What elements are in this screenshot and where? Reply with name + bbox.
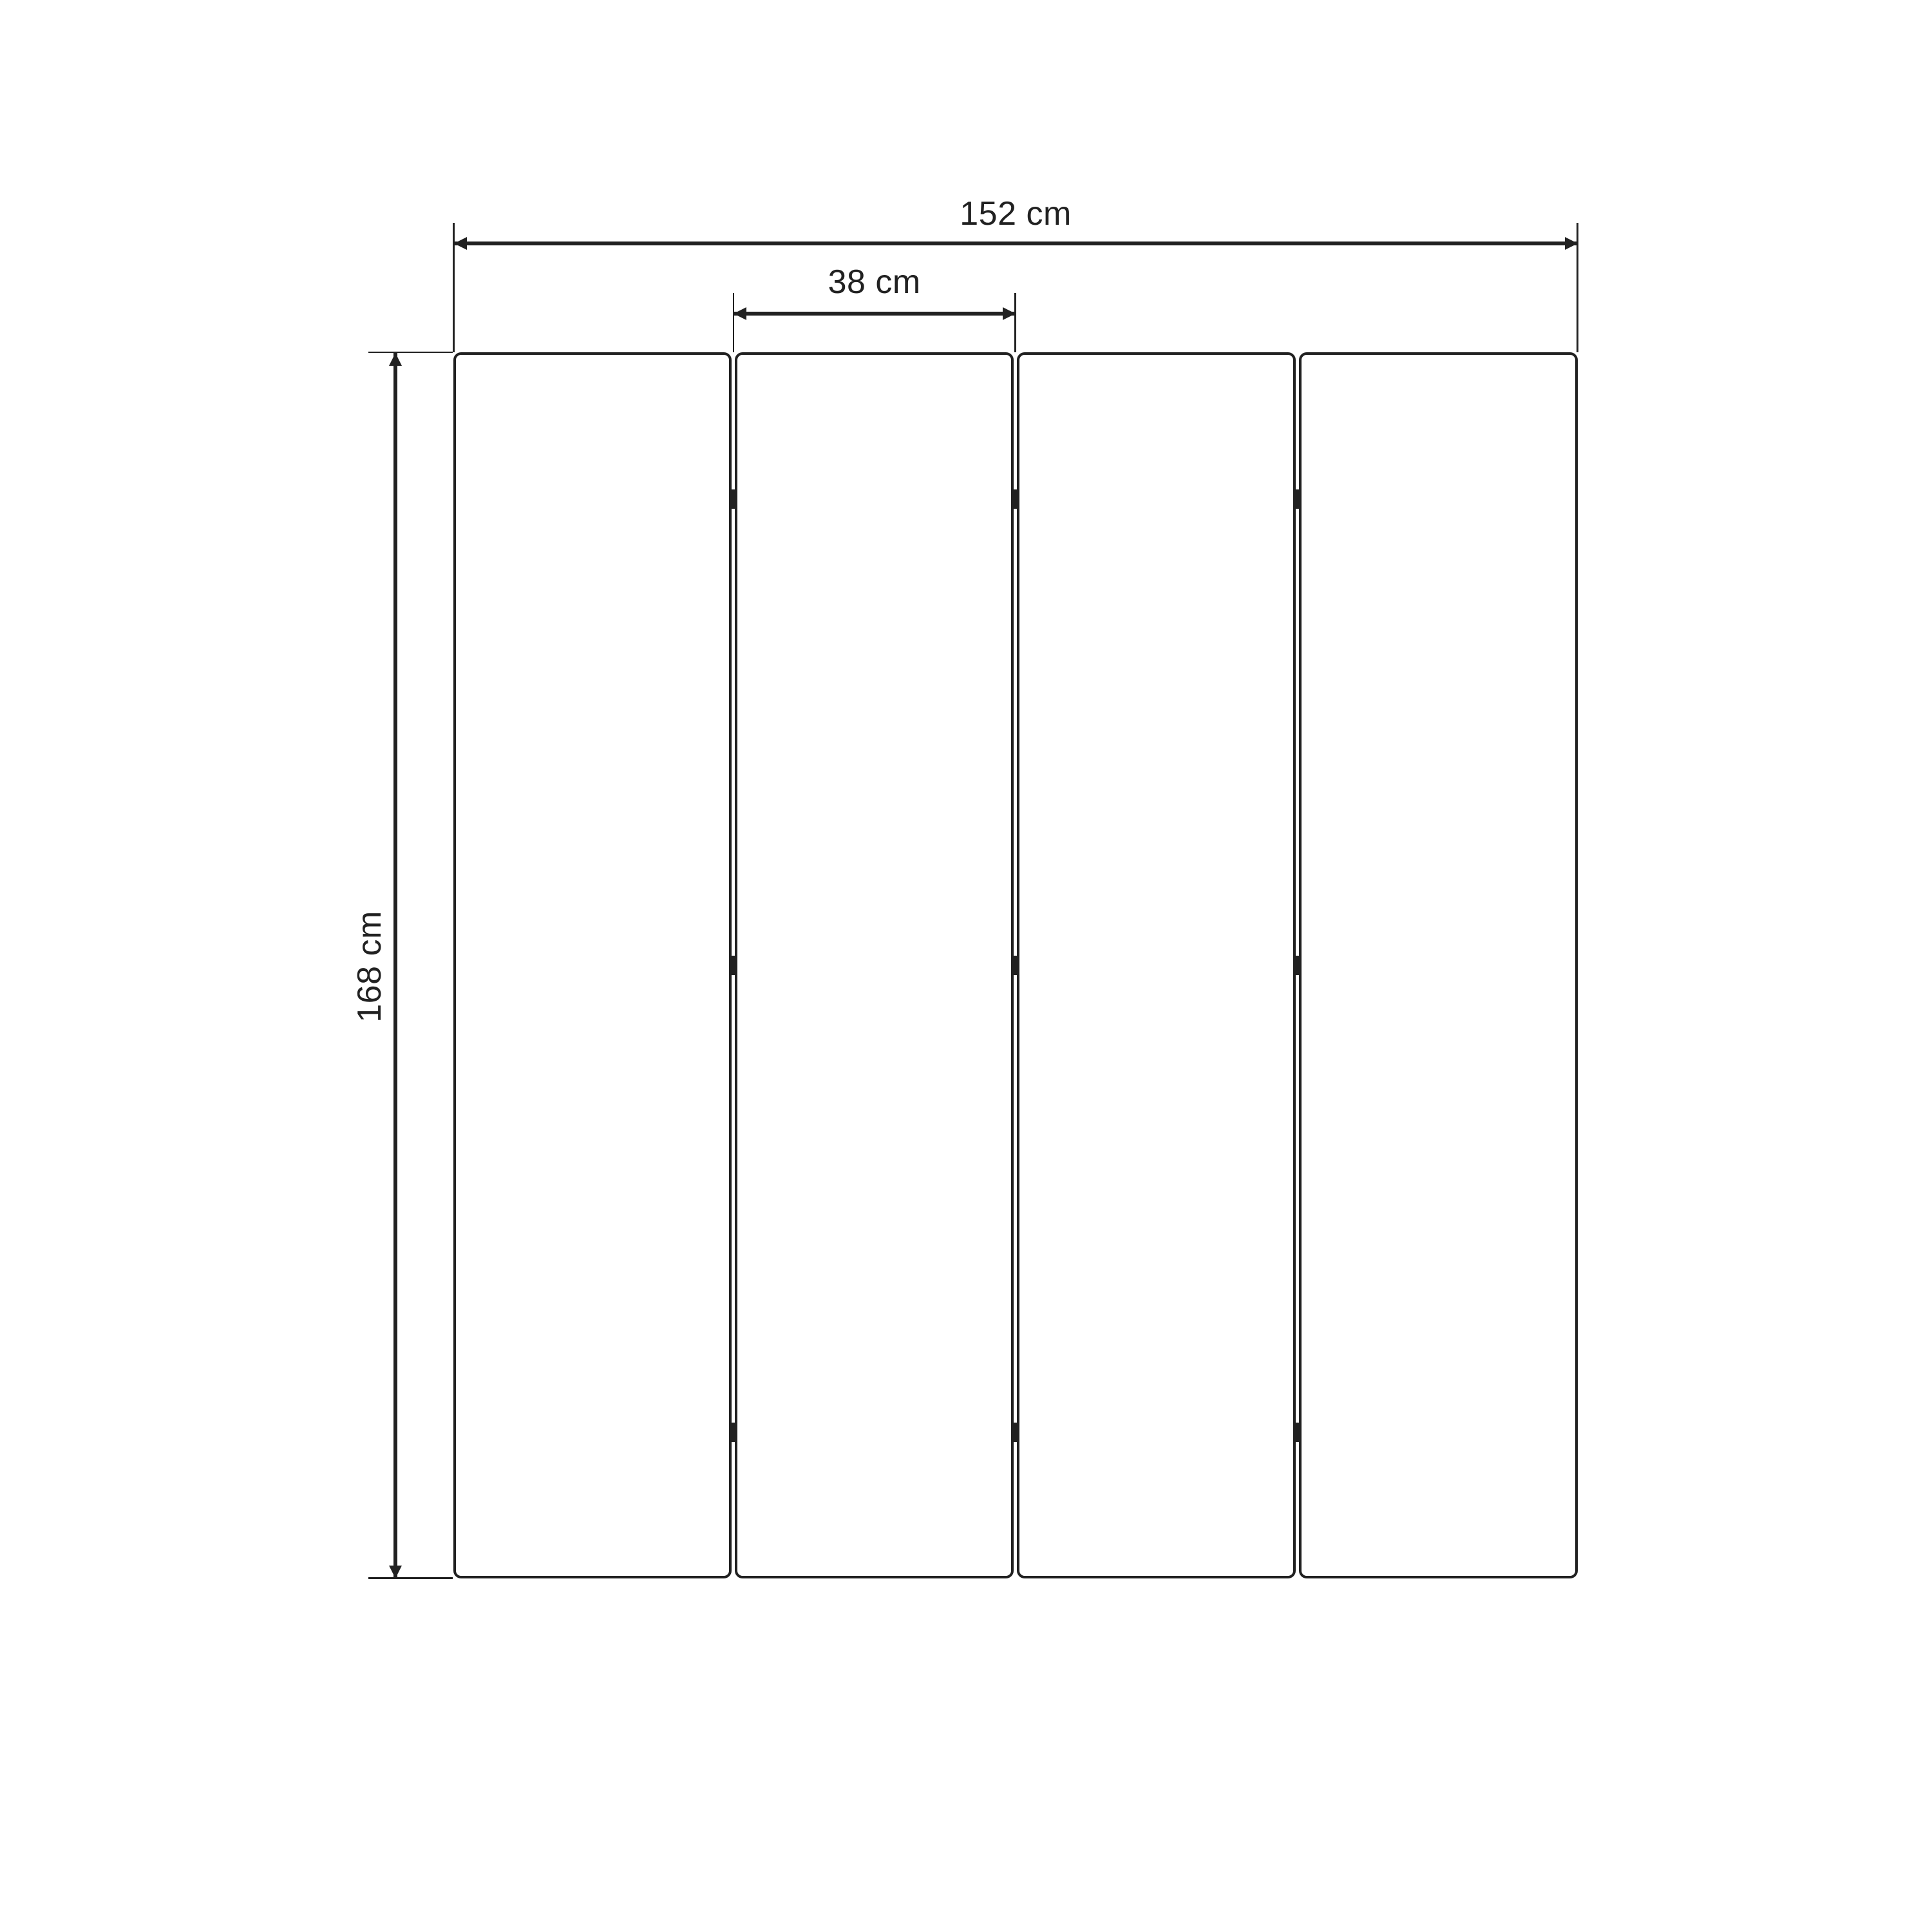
arrowhead-down-icon [389,1566,402,1578]
panel-2 [735,352,1014,1578]
extension-line-height-top [368,352,453,353]
dimension-line-panel-width [734,312,1016,316]
total-width-label: 152 cm [454,197,1578,231]
arrowhead-right-icon [1565,237,1578,250]
panel-3 [1017,352,1296,1578]
height-label: 168 cm [353,911,386,1023]
panel-row [453,352,1578,1578]
arrowhead-left-icon [734,307,746,320]
dimension-drawing-canvas: 152 cm 38 cm 168 cm [0,0,1932,1932]
arrowhead-right-icon [1003,307,1016,320]
extension-line-height-bottom [368,1577,453,1578]
panel-4 [1299,352,1578,1578]
dimension-line-height [393,353,397,1578]
extension-line-panel-width-right [1014,293,1016,352]
extension-line-panel-width-left [733,293,734,352]
panel-1 [453,352,732,1578]
arrowhead-left-icon [454,237,467,250]
arrowhead-up-icon [389,353,402,366]
dimension-line-total-width [454,241,1578,245]
panel-width-label: 38 cm [734,265,1016,299]
